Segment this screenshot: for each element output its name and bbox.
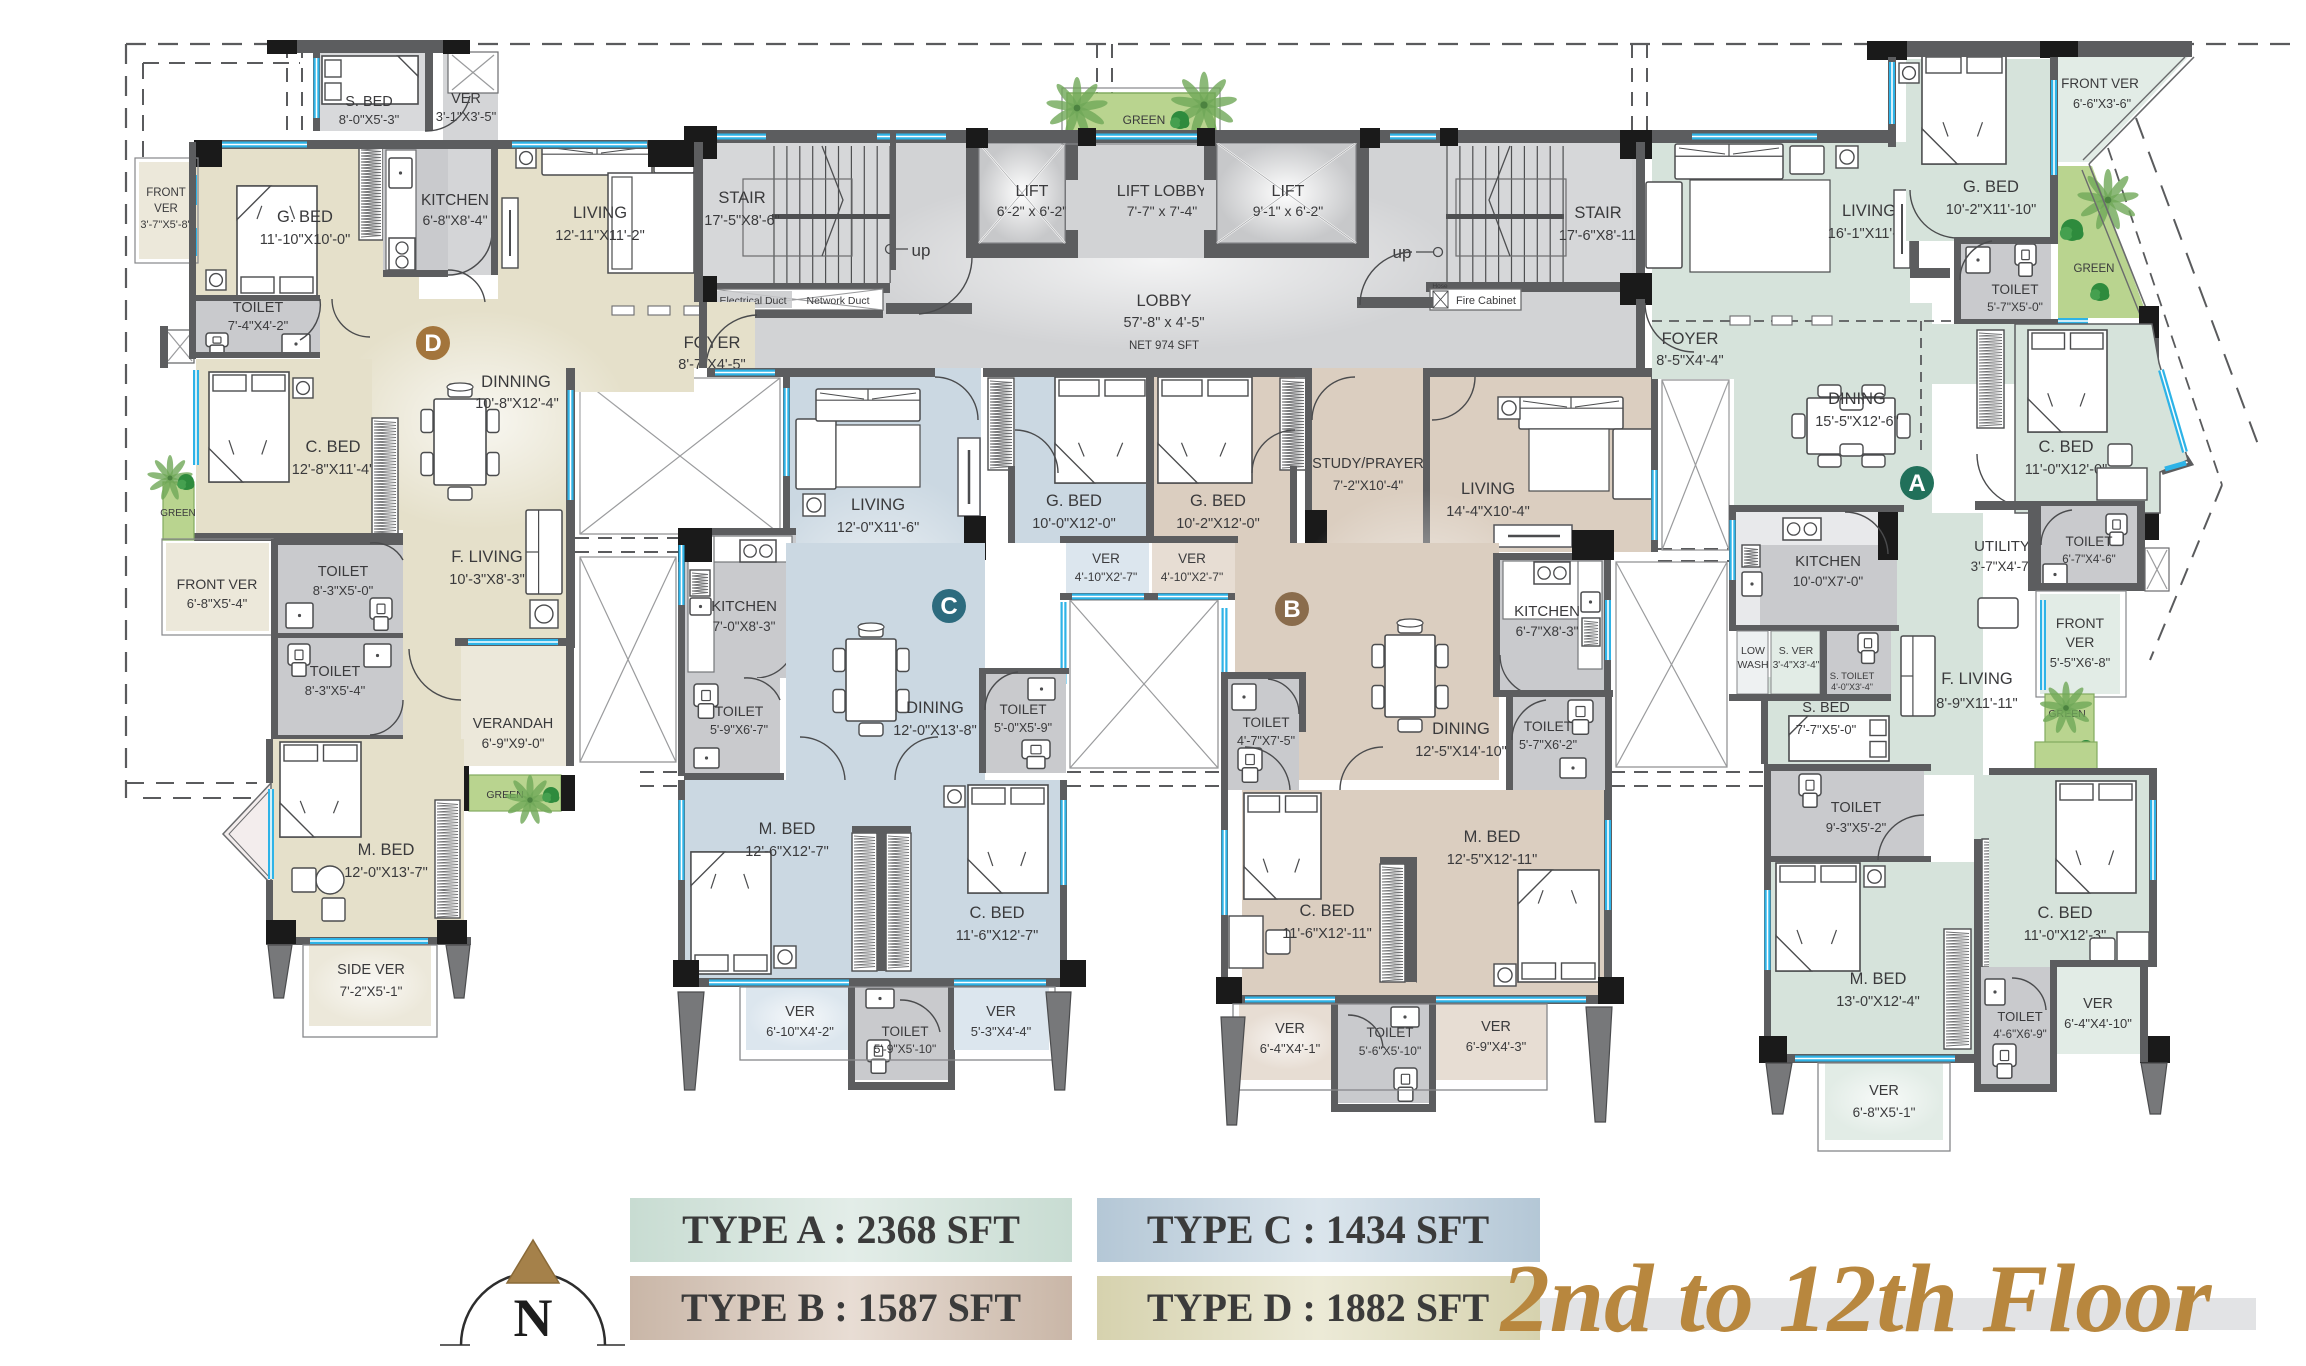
svg-text:S. VER: S. VER (1779, 645, 1814, 657)
svg-text:TOILET: TOILET (715, 703, 764, 719)
svg-text:LIFT: LIFT (1016, 183, 1049, 200)
svg-text:5'-7"X6'-2": 5'-7"X6'-2" (1519, 738, 1577, 752)
svg-text:LOW: LOW (1741, 645, 1765, 657)
svg-text:8'-3"X5'-0": 8'-3"X5'-0" (313, 583, 374, 598)
svg-text:13'-0"X12'-4": 13'-0"X12'-4" (1836, 994, 1920, 1010)
svg-text:VER: VER (451, 91, 481, 107)
svg-text:5'-6"X5'-10": 5'-6"X5'-10" (1359, 1044, 1421, 1058)
svg-text:5'-9"X6'-7": 5'-9"X6'-7" (710, 723, 768, 737)
svg-text:up: up (912, 241, 931, 260)
svg-text:7'-7" x 7'-4": 7'-7" x 7'-4" (1127, 203, 1198, 219)
svg-text:LIVING: LIVING (851, 496, 905, 514)
svg-text:VER: VER (1275, 1021, 1305, 1037)
svg-text:FRONT VER: FRONT VER (177, 576, 258, 592)
svg-text:Fire Cabinet: Fire Cabinet (1456, 295, 1516, 307)
svg-text:DINING: DINING (906, 699, 964, 717)
svg-text:KITCHEN: KITCHEN (1795, 553, 1861, 570)
svg-text:VER: VER (1092, 551, 1120, 566)
svg-text:M. BED: M. BED (759, 820, 816, 838)
svg-text:DINNING: DINNING (481, 373, 551, 391)
svg-text:VER: VER (1178, 551, 1206, 566)
svg-text:C. BED: C. BED (2037, 904, 2092, 922)
svg-text:LOBBY: LOBBY (1136, 292, 1191, 310)
svg-text:11'-6"X12'-7": 11'-6"X12'-7" (956, 928, 1038, 944)
svg-text:DINING: DINING (1432, 720, 1490, 738)
svg-text:8'-5"X4'-4": 8'-5"X4'-4" (1656, 353, 1723, 369)
svg-text:S. BED: S. BED (1802, 700, 1850, 716)
svg-text:C. BED: C. BED (1299, 902, 1354, 920)
svg-text:3'-7"X4'-7": 3'-7"X4'-7" (1971, 559, 2034, 574)
svg-text:6'-7"X4'-6": 6'-7"X4'-6" (2062, 554, 2115, 566)
svg-text:Network Duct: Network Duct (806, 295, 869, 307)
svg-text:4'-0"X3'-4": 4'-0"X3'-4" (1831, 682, 1873, 692)
svg-text:TOILET: TOILET (1831, 800, 1882, 816)
svg-text:NET 974 SFT: NET 974 SFT (1129, 340, 1199, 352)
svg-text:F. LIVING: F. LIVING (1941, 670, 2013, 688)
svg-text:TOILET: TOILET (1242, 715, 1289, 730)
svg-text:6'-10"X4'-2": 6'-10"X4'-2" (766, 1024, 834, 1039)
svg-text:12'-8"X11'-4": 12'-8"X11'-4" (292, 462, 374, 478)
svg-text:4'-6"X6'-9": 4'-6"X6'-9" (1993, 1029, 2046, 1041)
svg-text:FRONT: FRONT (146, 187, 186, 199)
svg-text:LIFT: LIFT (1272, 183, 1305, 200)
svg-text:4'-10"X2'-7": 4'-10"X2'-7" (1075, 570, 1137, 584)
svg-text:TOILET: TOILET (999, 702, 1046, 717)
svg-text:12'-5"X12'-11": 12'-5"X12'-11" (1447, 852, 1538, 868)
svg-text:DINING: DINING (1828, 390, 1886, 408)
svg-text:FRONT VER: FRONT VER (2061, 76, 2139, 91)
svg-text:3'-4"X3'-4": 3'-4"X3'-4" (1773, 660, 1820, 671)
svg-text:6'-9"X9'-0": 6'-9"X9'-0" (482, 736, 545, 751)
svg-text:N: N (514, 1288, 553, 1348)
svg-text:TYPE C : 1434 SFT: TYPE C : 1434 SFT (1147, 1207, 1490, 1252)
svg-text:7'-7"X5'-0": 7'-7"X5'-0" (1796, 722, 1857, 737)
svg-text:G. BED: G. BED (1963, 178, 2019, 196)
svg-text:M. BED: M. BED (1850, 970, 1907, 988)
svg-text:10'-0"X7'-0": 10'-0"X7'-0" (1793, 574, 1863, 589)
svg-text:C. BED: C. BED (305, 438, 360, 456)
svg-text:7'-2"X10'-4": 7'-2"X10'-4" (1333, 478, 1403, 493)
svg-text:LIFT LOBBY: LIFT LOBBY (1117, 183, 1208, 200)
svg-text:TOILET: TOILET (2065, 534, 2112, 549)
svg-text:2nd to 12th Floor: 2nd to 12th Floor (1499, 1245, 2213, 1353)
svg-text:10'-3"X8'-3": 10'-3"X8'-3" (449, 572, 524, 588)
svg-text:8'-0"X5'-3": 8'-0"X5'-3" (339, 112, 400, 127)
svg-text:B: B (1283, 596, 1300, 623)
svg-text:G. BED: G. BED (1046, 492, 1102, 510)
svg-text:TYPE D : 1882 SFT: TYPE D : 1882 SFT (1147, 1285, 1490, 1330)
svg-text:6'-9"X4'-3": 6'-9"X4'-3" (1466, 1039, 1527, 1054)
svg-text:TYPE A : 2368 SFT: TYPE A : 2368 SFT (682, 1207, 1020, 1252)
svg-text:17'-5"X8'-6": 17'-5"X8'-6" (704, 213, 779, 229)
svg-text:TOILET: TOILET (1366, 1025, 1413, 1040)
svg-text:STAIR: STAIR (718, 189, 765, 207)
svg-text:12'-11"X11'-2": 12'-11"X11'-2" (555, 228, 644, 244)
svg-text:12'-6"X12'-7": 12'-6"X12'-7" (745, 844, 829, 860)
svg-text:3'-1"X3'-5": 3'-1"X3'-5" (436, 109, 497, 124)
svg-text:GREEN: GREEN (160, 508, 196, 519)
svg-text:G. BED: G. BED (277, 208, 333, 226)
svg-text:VER: VER (1869, 1083, 1899, 1099)
svg-text:7'-2"X5'-1": 7'-2"X5'-1" (340, 984, 403, 999)
svg-text:5'-9"X5'-10": 5'-9"X5'-10" (874, 1042, 936, 1056)
svg-text:FRONT: FRONT (2056, 615, 2105, 631)
svg-text:7'-0"X8'-3": 7'-0"X8'-3" (713, 619, 776, 634)
svg-text:14'-4"X10'-4": 14'-4"X10'-4" (1446, 504, 1530, 520)
svg-text:TOILET: TOILET (1991, 282, 2038, 297)
svg-text:C: C (940, 593, 957, 620)
svg-text:6'-2" x 6'-2": 6'-2" x 6'-2" (997, 203, 1068, 219)
svg-text:S. BED: S. BED (345, 94, 393, 110)
svg-text:TOILET: TOILET (233, 300, 284, 316)
svg-text:9'-3"X5'-2": 9'-3"X5'-2" (1826, 820, 1887, 835)
svg-text:Hose: Hose (1432, 283, 1448, 290)
svg-text:10'-2"X11'-10": 10'-2"X11'-10" (1946, 202, 2037, 218)
svg-text:11'-10"X10'-0": 11'-10"X10'-0" (260, 232, 351, 248)
svg-text:C. BED: C. BED (2038, 438, 2093, 456)
svg-text:6'-6"X3'-6": 6'-6"X3'-6" (2073, 97, 2131, 111)
svg-text:6'-4"X4'-10": 6'-4"X4'-10" (2064, 1016, 2132, 1031)
svg-text:11'-0"X12'-0": 11'-0"X12'-0" (2025, 462, 2107, 478)
svg-text:WASH: WASH (1737, 659, 1768, 671)
svg-text:M. BED: M. BED (358, 841, 415, 859)
svg-text:LIVING: LIVING (1842, 202, 1896, 220)
svg-text:TYPE B : 1587 SFT: TYPE B : 1587 SFT (681, 1285, 1021, 1330)
svg-text:9'-1" x 6'-2": 9'-1" x 6'-2" (1253, 203, 1324, 219)
svg-text:C. BED: C. BED (969, 904, 1024, 922)
svg-text:STAIR: STAIR (1574, 204, 1621, 222)
svg-text:7'-4"X4'-2": 7'-4"X4'-2" (228, 318, 289, 333)
svg-text:11'-6"X12'-11": 11'-6"X12'-11" (1282, 926, 1371, 942)
svg-text:12'-0"X11'-6": 12'-0"X11'-6" (837, 520, 919, 536)
svg-text:TOILET: TOILET (1524, 718, 1573, 734)
svg-text:LIVING: LIVING (1461, 480, 1515, 498)
svg-text:KITCHEN: KITCHEN (711, 598, 777, 615)
svg-text:GREEN: GREEN (2074, 263, 2115, 275)
svg-text:6'-8"X8'-4": 6'-8"X8'-4" (422, 212, 487, 228)
svg-text:4'-10"X2'-7": 4'-10"X2'-7" (1161, 570, 1223, 584)
svg-text:VER: VER (1481, 1019, 1511, 1035)
svg-text:17'-6"X8'-11": 17'-6"X8'-11" (1559, 228, 1641, 244)
svg-text:57'-8" x 4'-5": 57'-8" x 4'-5" (1123, 315, 1204, 331)
svg-text:VER: VER (785, 1004, 815, 1020)
svg-text:6'-4"X4'-1": 6'-4"X4'-1" (1260, 1041, 1321, 1056)
svg-text:8'-9"X11'-11": 8'-9"X11'-11" (1936, 696, 2017, 712)
svg-text:D: D (424, 330, 441, 357)
svg-text:LIVING: LIVING (573, 204, 627, 222)
svg-text:SIDE VER: SIDE VER (337, 962, 405, 978)
svg-text:STUDY/PRAYER: STUDY/PRAYER (1312, 456, 1424, 472)
svg-text:6'-8"X5'-1": 6'-8"X5'-1" (1853, 1105, 1916, 1120)
svg-text:5'-0"X5'-9": 5'-0"X5'-9" (994, 721, 1052, 735)
svg-text:A: A (1908, 470, 1925, 497)
svg-text:VER: VER (154, 203, 178, 215)
svg-text:5'-5"X6'-8": 5'-5"X6'-8" (2050, 655, 2111, 670)
svg-text:10'-2"X12'-0": 10'-2"X12'-0" (1176, 516, 1260, 532)
svg-text:VER: VER (986, 1004, 1016, 1020)
svg-text:S. TOILET: S. TOILET (1830, 671, 1875, 682)
svg-text:UTILITY: UTILITY (1974, 538, 2030, 555)
svg-text:8'-3"X5'-4": 8'-3"X5'-4" (305, 683, 366, 698)
svg-text:12'-5"X14'-10": 12'-5"X14'-10" (1415, 744, 1507, 760)
svg-text:F. LIVING: F. LIVING (451, 548, 523, 566)
svg-text:TOILET: TOILET (1997, 1009, 2042, 1024)
svg-text:5'-3"X4'-4": 5'-3"X4'-4" (971, 1024, 1032, 1039)
svg-text:10'-0"X12'-0": 10'-0"X12'-0" (1032, 516, 1116, 532)
svg-text:VER: VER (2066, 634, 2095, 650)
svg-text:3'-7"X5'-8": 3'-7"X5'-8" (140, 219, 191, 231)
svg-text:M. BED: M. BED (1464, 828, 1521, 846)
svg-text:6'-8"X5'-4": 6'-8"X5'-4" (187, 596, 248, 611)
svg-text:VERANDAH: VERANDAH (473, 716, 554, 732)
svg-text:15'-5"X12'-6": 15'-5"X12'-6" (1815, 414, 1899, 430)
svg-text:6'-7"X8'-3": 6'-7"X8'-3" (1516, 624, 1579, 639)
svg-text:5'-7"X5'-0": 5'-7"X5'-0" (1987, 300, 2043, 314)
svg-text:TOILET: TOILET (310, 664, 361, 680)
svg-text:10'-8"X12'-4": 10'-8"X12'-4" (475, 396, 559, 412)
svg-text:VER: VER (2083, 996, 2113, 1012)
svg-text:KITCHEN: KITCHEN (1514, 603, 1580, 620)
svg-text:KITCHEN: KITCHEN (421, 192, 489, 209)
svg-text:GREEN: GREEN (1123, 113, 1166, 127)
svg-text:4'-7"X7'-5": 4'-7"X7'-5" (1237, 734, 1295, 748)
svg-text:TOILET: TOILET (881, 1024, 928, 1039)
svg-text:TOILET: TOILET (318, 564, 369, 580)
svg-text:G. BED: G. BED (1190, 492, 1246, 510)
svg-text:12'-0"X13'-7": 12'-0"X13'-7" (344, 865, 428, 881)
